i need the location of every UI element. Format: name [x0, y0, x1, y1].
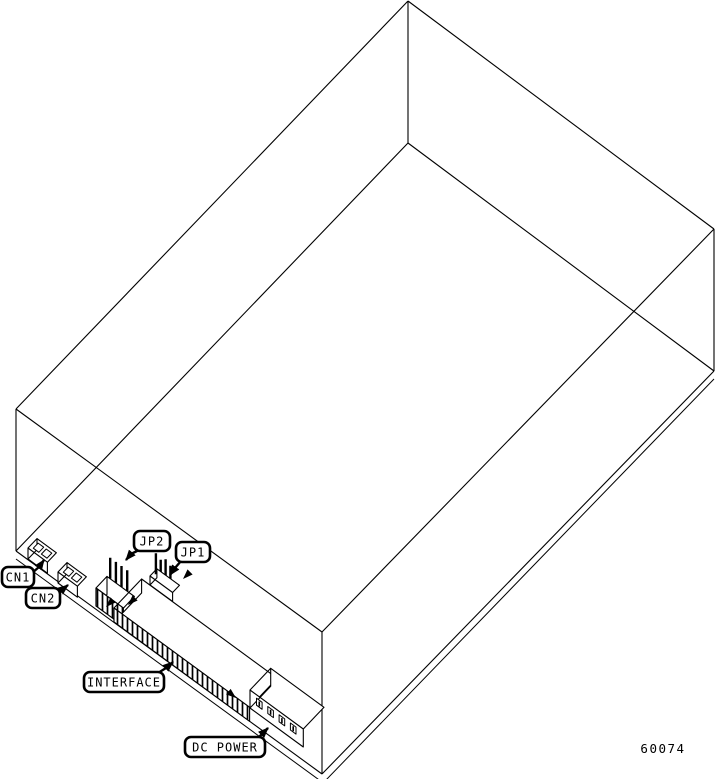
callout-cn1-label: CN1	[6, 571, 31, 585]
figure-canvas: CN1 CN2 JP2 JP1 INTERFACE DC POWER	[0, 0, 717, 779]
drive-connector-diagram: CN1 CN2 JP2 JP1 INTERFACE DC POWER	[0, 0, 717, 779]
callout-dc-power-label: DC POWER	[192, 741, 258, 755]
figure-number: 60074	[640, 741, 685, 756]
paper-background	[0, 0, 717, 779]
callout-jp1-label: JP1	[181, 546, 206, 560]
callout-cn2-label: CN2	[31, 592, 56, 606]
callout-interface-label: INTERFACE	[87, 676, 161, 690]
callout-jp2-label: JP2	[140, 535, 165, 549]
